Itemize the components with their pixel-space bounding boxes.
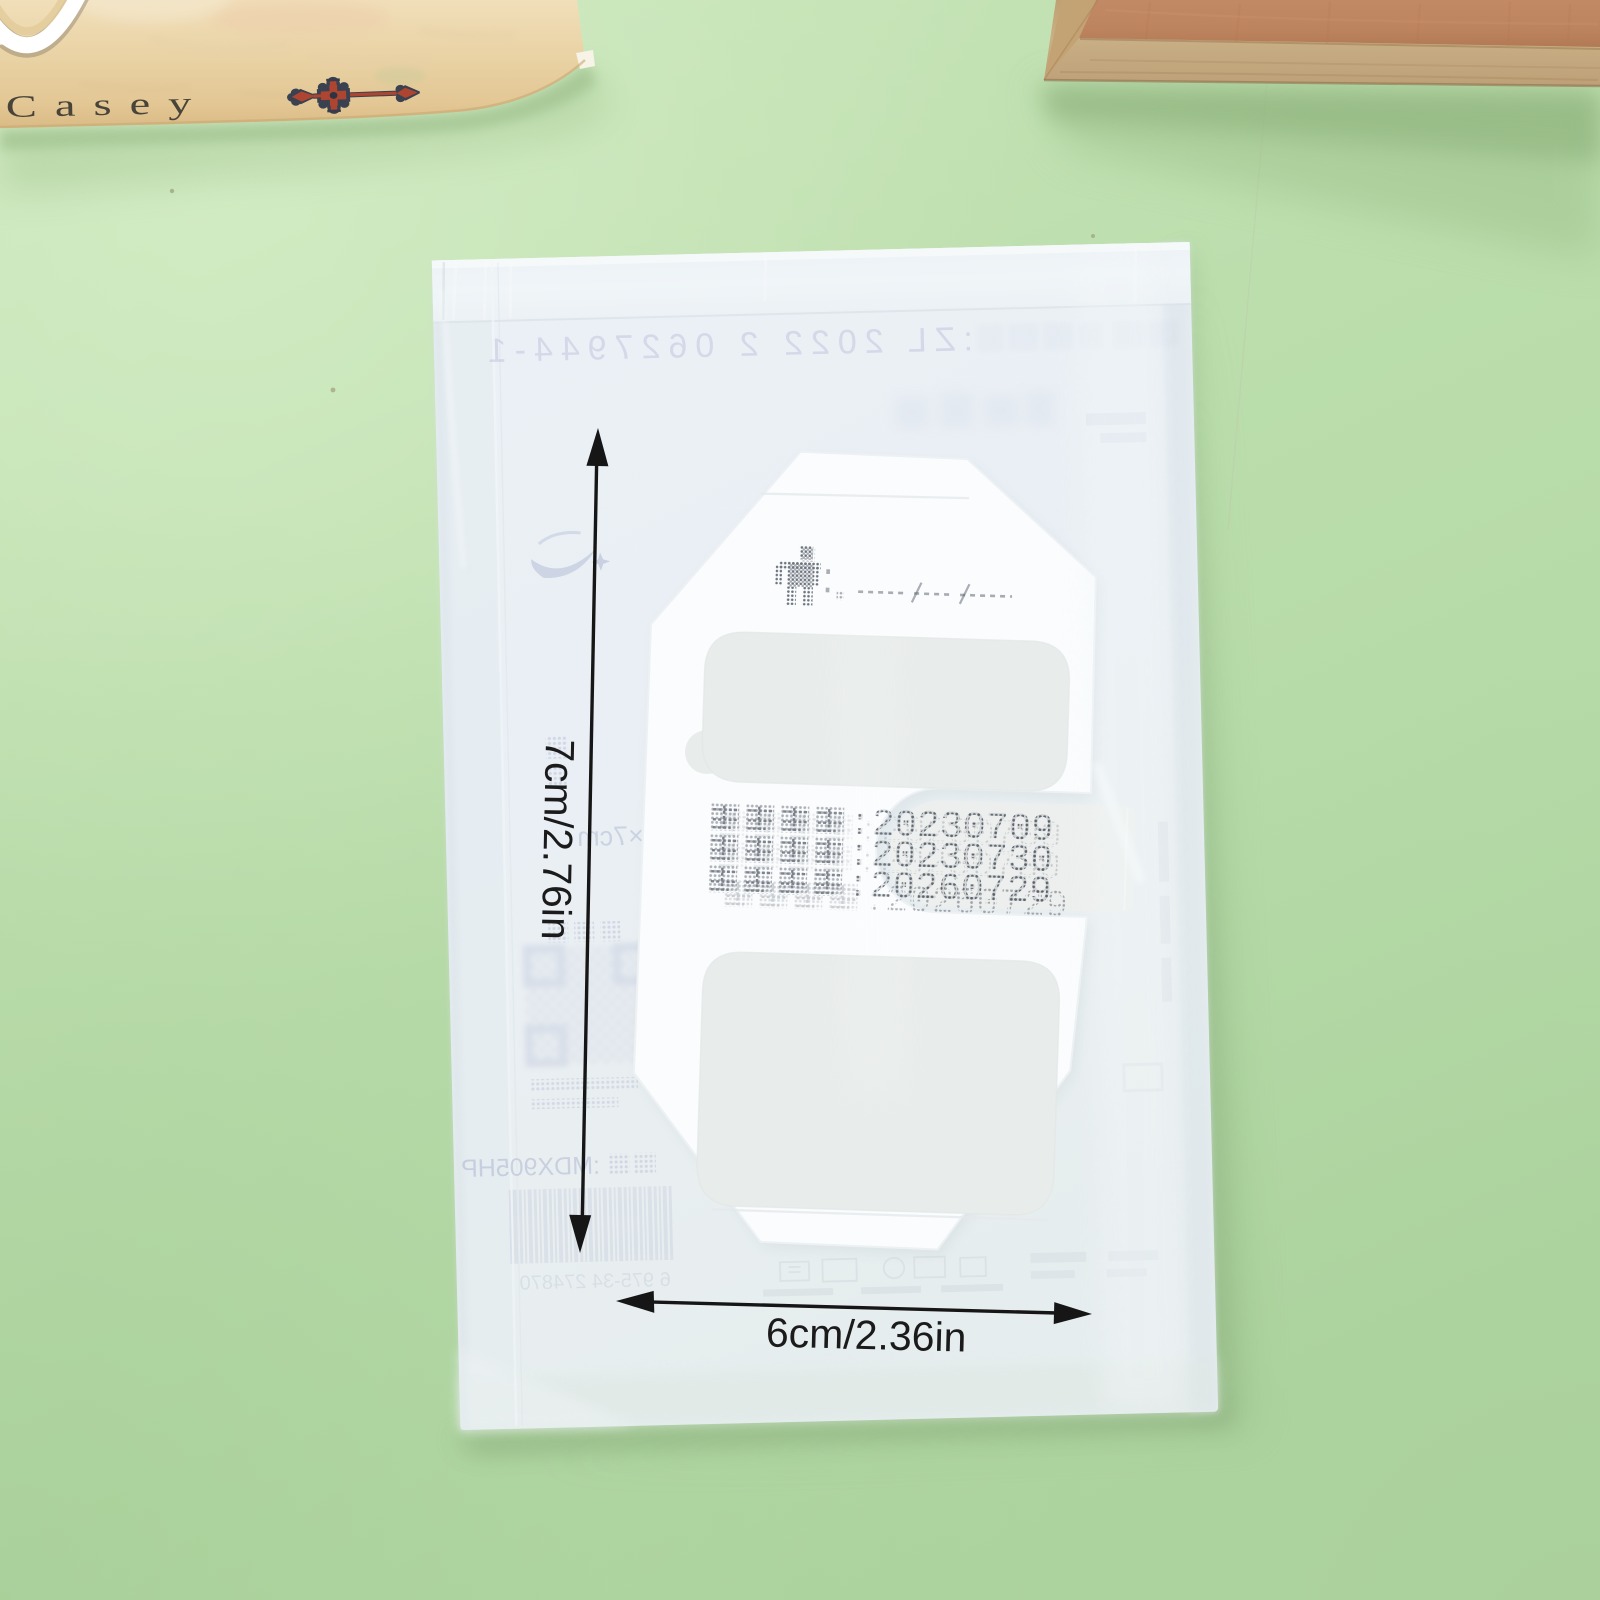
svg-text:×7cm: ×7cm — [577, 820, 644, 852]
svg-text::MDX905HP: :MDX905HP — [461, 1152, 601, 1183]
svg-text:6cm/2.36in: 6cm/2.36in — [765, 1309, 967, 1360]
svg-text:7cm/2.76in: 7cm/2.76in — [533, 739, 583, 940]
svg-text:Casey: Casey — [5, 85, 209, 124]
svg-text:6 975-34 274870: 6 975-34 274870 — [519, 1269, 671, 1295]
